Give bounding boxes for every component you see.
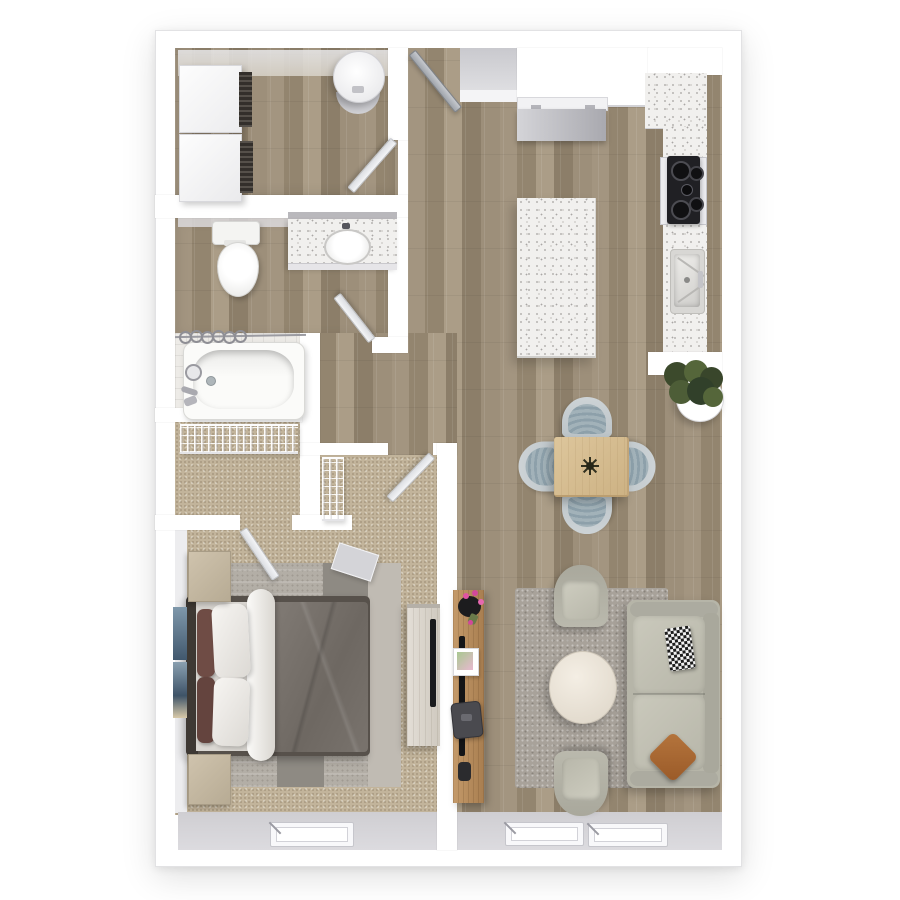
bedroom-window bbox=[270, 822, 354, 847]
desk-speaker bbox=[458, 762, 471, 781]
sofa-cushion-crease bbox=[633, 693, 705, 695]
dryer-vent bbox=[240, 141, 253, 193]
armchair-north-cushion bbox=[562, 580, 600, 620]
nightstand-top bbox=[188, 551, 231, 602]
potted-plant bbox=[662, 360, 724, 422]
vanity-faucet bbox=[342, 223, 350, 229]
bed-body-roll bbox=[247, 589, 275, 761]
dryer-unit bbox=[179, 134, 242, 202]
burner-front-right bbox=[689, 166, 704, 181]
washer-vent bbox=[239, 72, 252, 127]
kitchen-island bbox=[517, 198, 596, 358]
vanity-backsplash bbox=[288, 212, 397, 219]
refrigerator-body bbox=[517, 109, 606, 141]
bedroom-nook-wire-shelf bbox=[322, 457, 344, 521]
wall-laundry-entry bbox=[388, 48, 408, 140]
laptop-detail bbox=[461, 714, 472, 721]
bedroom-window-pane bbox=[276, 827, 348, 842]
armchair-south bbox=[554, 751, 608, 816]
burner-rear-left bbox=[671, 200, 691, 220]
centerpiece-center bbox=[586, 462, 594, 470]
wall-art-1 bbox=[171, 607, 187, 660]
sink-drain bbox=[684, 277, 690, 283]
pillow-white-1 bbox=[211, 603, 251, 679]
wall-hall-bedroom-west bbox=[300, 443, 388, 455]
sofa-backrest bbox=[703, 613, 719, 773]
tub-faucet-handle bbox=[185, 364, 202, 381]
wall-art-2 bbox=[171, 662, 187, 718]
rug-dark-block-bottom bbox=[277, 751, 324, 787]
floor-plan-stage bbox=[0, 0, 900, 900]
dining-chair-west-cushion bbox=[526, 448, 556, 486]
wall-closet-bedroom-west bbox=[155, 515, 240, 530]
table-centerpiece bbox=[580, 456, 600, 476]
flower-4 bbox=[468, 620, 473, 625]
dining-chair-north-cushion bbox=[568, 404, 606, 434]
entry-coat-nook-panel bbox=[460, 48, 517, 92]
entry-nook-base bbox=[460, 90, 517, 102]
cooktop-center-knob bbox=[681, 184, 693, 196]
dining-chair-south-cushion bbox=[568, 497, 606, 527]
pillow-white-2 bbox=[212, 677, 250, 746]
nightstand-bottom bbox=[188, 754, 231, 805]
picture-frame-photo bbox=[457, 652, 473, 670]
wall-bath-south-jamb bbox=[372, 337, 408, 353]
water-heater-fitting bbox=[352, 86, 364, 93]
flower-vase bbox=[458, 596, 481, 617]
flower-2 bbox=[472, 590, 478, 596]
curtain-ring-6 bbox=[234, 330, 247, 343]
sink-faucet bbox=[698, 271, 703, 288]
coffee-table bbox=[549, 651, 617, 724]
armchair-south-cushion bbox=[562, 758, 600, 801]
burner-rear-right bbox=[689, 197, 704, 212]
bed-duvet bbox=[262, 602, 368, 752]
tub-drain bbox=[206, 376, 216, 386]
water-heater-top bbox=[333, 51, 385, 103]
vanity-sink bbox=[324, 229, 371, 265]
flower-3 bbox=[478, 599, 484, 605]
living-window-2-pane bbox=[594, 828, 662, 842]
rug-light-column bbox=[368, 563, 401, 787]
flower-1 bbox=[463, 593, 469, 599]
bedroom-tv bbox=[430, 619, 436, 707]
kitchen-corner-cabinet bbox=[648, 48, 722, 75]
armchair-north bbox=[554, 565, 608, 627]
plant-leaf-6 bbox=[703, 387, 723, 407]
living-window-1 bbox=[505, 822, 584, 846]
granite-counter-top-run bbox=[645, 73, 707, 129]
closet-wire-shelf bbox=[180, 424, 298, 454]
living-window-1-pane bbox=[511, 827, 578, 841]
living-window-2 bbox=[588, 823, 668, 847]
burner-front-left bbox=[671, 161, 691, 181]
washer-unit bbox=[179, 65, 242, 133]
